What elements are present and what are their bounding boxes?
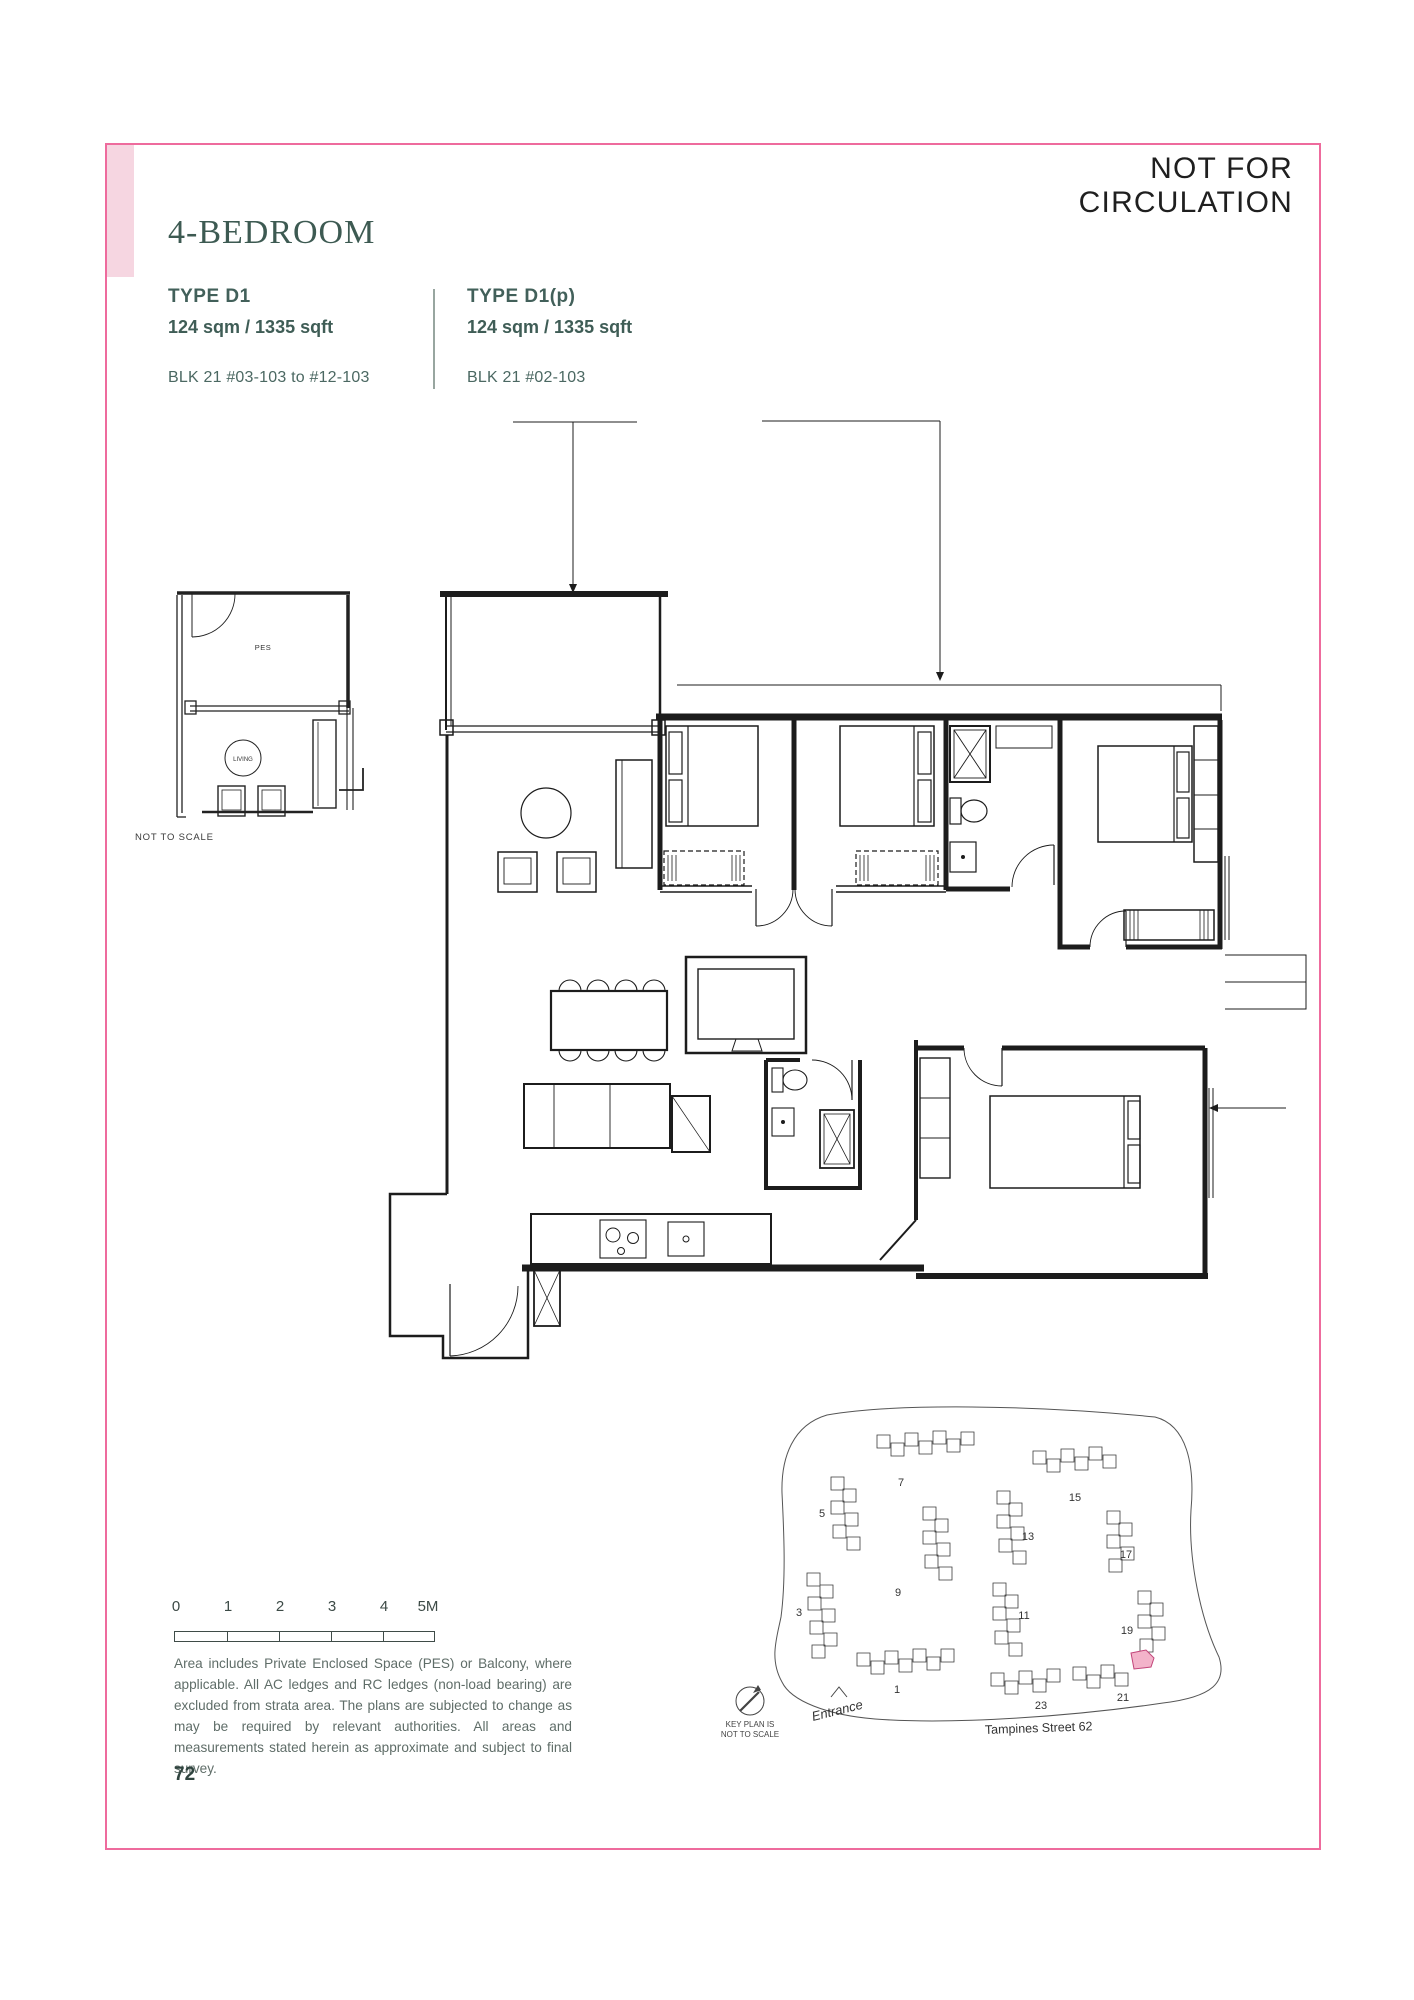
- leader-arrow-icon: [936, 672, 944, 681]
- type-d1p-section: TYPE D1(p) 124 sqm / 1335 sqft BLK 21 #0…: [467, 286, 717, 387]
- block-label: 5: [819, 1508, 825, 1520]
- scale-tick: 1: [224, 1598, 232, 1615]
- scale-tick: 0: [172, 1598, 180, 1615]
- watermark: NOT FOR CIRCULATION: [928, 152, 1293, 220]
- not-to-scale-note: NOT TO SCALE: [135, 832, 214, 843]
- block-label: 15: [1069, 1492, 1081, 1504]
- scale-tick: 4: [380, 1598, 388, 1615]
- type-blocks: BLK 21 #03-103 to #12-103: [168, 369, 418, 387]
- entrance-arrow-icon: [831, 1687, 847, 1697]
- page-title: 4-BEDROOM: [168, 214, 375, 252]
- keyplan-note-line1: KEY PLAN IS: [726, 1720, 775, 1729]
- type-name: TYPE D1: [168, 286, 418, 308]
- highlighted-unit: [1131, 1650, 1154, 1669]
- scale-tick: 5M: [418, 1598, 439, 1615]
- north-arrow-icon: [736, 1685, 764, 1715]
- key-plan: 7 5 3 9 13 15 17 19 11 1 23 21 KEY PLAN …: [555, 1385, 1245, 1765]
- living-room-label: LIVING: [233, 757, 253, 763]
- block-label: 1: [894, 1684, 900, 1696]
- type-name: TYPE D1(p): [467, 286, 717, 308]
- type-d1-section: TYPE D1 124 sqm / 1335 sqft BLK 21 #03-1…: [168, 286, 418, 387]
- scale-tick: 3: [328, 1598, 336, 1615]
- block-label: 21: [1117, 1692, 1129, 1704]
- pes-room-label: PES: [255, 643, 272, 652]
- block-label: 11: [1018, 1610, 1029, 1622]
- block-label: 3: [796, 1607, 802, 1619]
- scale-bar: [174, 1631, 435, 1642]
- block-label: 13: [1022, 1531, 1034, 1543]
- block-label: 17: [1120, 1549, 1132, 1561]
- block-label: 7: [898, 1477, 904, 1489]
- type-blocks: BLK 21 #02-103: [467, 369, 717, 387]
- page-number: 72: [174, 1764, 195, 1786]
- street-label: Tampines Street 62: [985, 1719, 1093, 1737]
- main-floor-plan: [300, 408, 1320, 1368]
- entrance-label: Entrance: [810, 1697, 864, 1724]
- brochure-page: NOT FOR CIRCULATION 4-BEDROOM TYPE D1 12…: [0, 0, 1414, 2000]
- disclaimer-text: Area includes Private Enclosed Space (PE…: [174, 1653, 572, 1779]
- block-label: 23: [1035, 1700, 1047, 1712]
- type-divider: [433, 289, 435, 389]
- block-label: 9: [895, 1587, 901, 1599]
- type-area: 124 sqm / 1335 sqft: [168, 317, 418, 338]
- scale-tick: 2: [276, 1598, 284, 1615]
- block-label: 19: [1121, 1625, 1133, 1637]
- building-clusters: [807, 1431, 1165, 1694]
- type-area: 124 sqm / 1335 sqft: [467, 317, 717, 338]
- keyplan-note-line2: NOT TO SCALE: [721, 1730, 779, 1739]
